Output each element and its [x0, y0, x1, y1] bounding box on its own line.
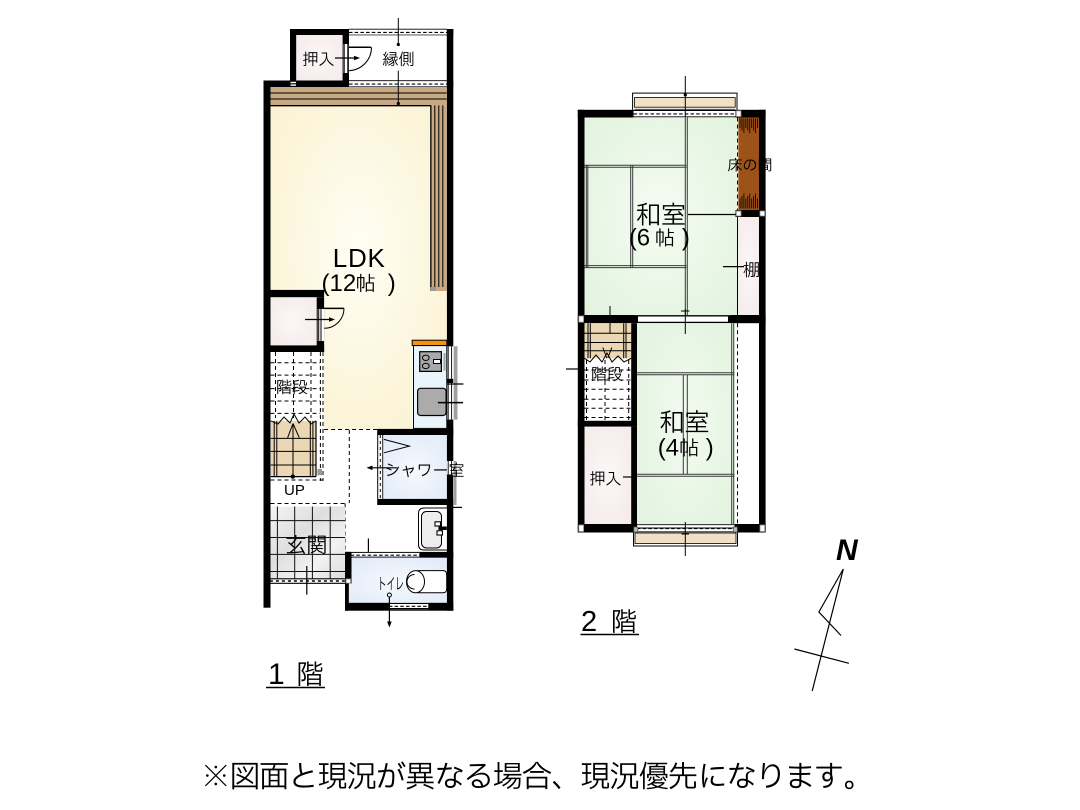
svg-text:1: 1	[268, 658, 285, 691]
svg-text:2: 2	[581, 606, 597, 638]
svg-text:N: N	[836, 534, 859, 567]
svg-text:UP: UP	[284, 482, 305, 499]
svg-text:): )	[388, 270, 396, 297]
svg-text:): )	[682, 225, 690, 252]
svg-text:(6: (6	[629, 225, 650, 252]
svg-text:(12: (12	[322, 270, 357, 297]
svg-text:LDK: LDK	[333, 243, 386, 273]
svg-text:): )	[706, 435, 714, 462]
svg-text:(4: (4	[658, 435, 679, 462]
